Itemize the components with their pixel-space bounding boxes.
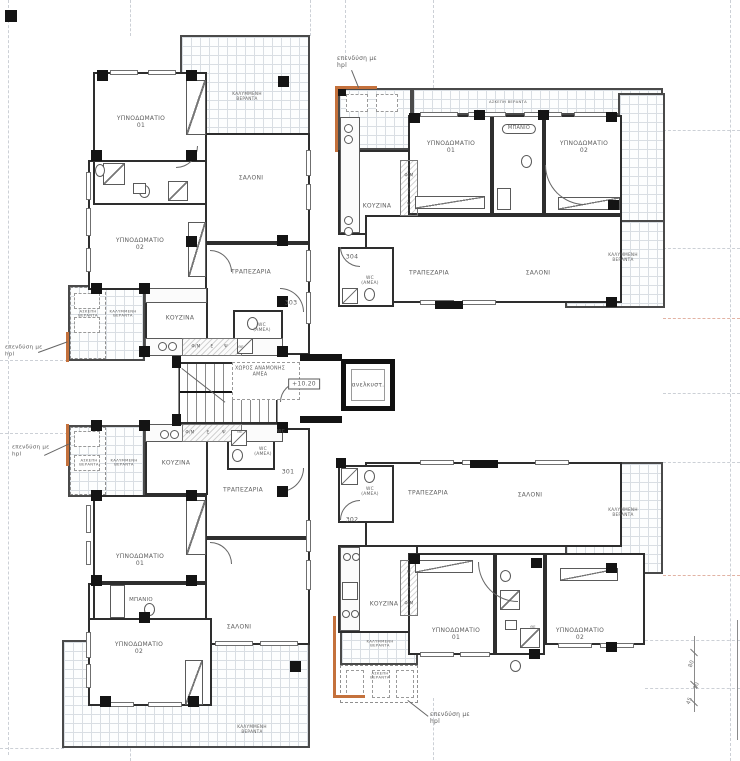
room-label-living-302: ΣΑΛΟΝΙ [518, 491, 542, 498]
fixture-shower-or-closet [520, 628, 540, 648]
grid-axis-line [645, 640, 740, 641]
room-label-veranda-open-302-small: ΑΣΚΕΠΗ ΒΕΡΑΝΤΑ [370, 672, 389, 681]
structural-column [91, 283, 102, 294]
fixture-sanitary [95, 164, 105, 177]
fixture-sanitary [342, 610, 350, 618]
room-label-dining-301: ΤΡΑΠΕΖΑΡΙΑ [223, 486, 263, 493]
window [306, 560, 311, 590]
fixture [505, 620, 517, 630]
shower-tag-302: ΘΕ [530, 625, 536, 629]
window [86, 632, 91, 658]
structural-column [409, 113, 420, 123]
appliance-fm-302: Φ/Μ [404, 601, 413, 606]
window [462, 300, 496, 305]
fixture-shower-or-closet [415, 560, 473, 573]
structural-column [278, 76, 289, 87]
fixture-sanitary [160, 430, 169, 439]
hpl-cladding-accent [335, 86, 377, 89]
structural-column [277, 235, 288, 246]
fixture-sanitary [521, 155, 532, 168]
structural-column [97, 70, 108, 81]
dashed-outline [74, 431, 100, 447]
grid-axis-line [663, 393, 740, 394]
structural-column [5, 10, 17, 22]
window [86, 541, 91, 565]
appliance-fm-304: Φ/Μ [404, 173, 413, 178]
structural-column [139, 346, 150, 357]
label-elevator: ανελκυστ. [352, 381, 385, 388]
wall-segment [435, 301, 463, 309]
room-label-living-304: ΣΑΛΟΝΙ [526, 269, 550, 276]
room-label-veranda-covered-303-side: ΚΑΛΥΜΜΕΝΗ ΒΕΡΑΝΤΑ [110, 310, 137, 319]
structural-column [474, 110, 485, 120]
room-label-living-303: ΣΑΛΟΝΙ [239, 174, 263, 181]
grid-axis-line [345, 0, 346, 58]
appliance-e-302: Ε [408, 586, 411, 591]
structural-column [409, 554, 420, 564]
room-label-bedroom1-304: ΥΠΝΟΔΩΜΑΤΙΟ 01 [427, 140, 475, 154]
grid-axis-line [663, 575, 740, 576]
note-hpl-top: επενδύση με hpl [337, 55, 377, 69]
appliance-psi-302: Ψ [407, 570, 411, 575]
room-label-veranda-covered-301-side: ΚΑΛΥΜΜΕΝΗ ΒΕΡΑΝΤΑ [111, 459, 138, 468]
level-marker: +10.20 [288, 379, 320, 390]
structural-column [538, 110, 549, 120]
structural-column [172, 414, 181, 426]
structural-column [277, 346, 288, 357]
room-label-bedroom2-303: ΥΠΝΟΔΩΜΑΤΙΟ 02 [116, 237, 164, 251]
window [260, 641, 298, 646]
room-label-bath-301: ΜΠΑΝΙΟ [129, 597, 153, 603]
fixture-sanitary [510, 660, 521, 672]
window [420, 112, 458, 117]
fixture-shower-or-closet [341, 468, 358, 485]
grid-axis-line [433, 698, 434, 760]
room-label-kitchen-301: ΚΟΥΖΙΝΑ [162, 459, 191, 466]
wall-segment [300, 354, 342, 361]
hpl-cladding-accent [335, 86, 338, 152]
room-label-veranda-covered-302-small: ΚΑΛΥΜΜΕΝΗ ΒΕΡΑΝΤΑ [367, 640, 394, 649]
window [86, 664, 91, 688]
wall-segment [470, 460, 498, 468]
dashed-outline [376, 94, 398, 112]
note-hpl-left-upper: επενδύση με hpl [5, 344, 42, 357]
fixture-sanitary [364, 288, 375, 301]
fixture [497, 188, 511, 210]
wall-segment [300, 416, 342, 423]
grid-axis-line [0, 360, 68, 361]
window [86, 208, 91, 236]
window [86, 248, 91, 272]
fixture-sanitary [168, 342, 177, 351]
structural-column [608, 200, 619, 210]
hpl-cladding-accent [333, 616, 336, 698]
room-label-dining-304: ΤΡΑΠΕΖΑΡΙΑ [409, 269, 449, 276]
room-label-dining-303: ΤΡΑΠΕΖΑΡΙΑ [231, 268, 271, 275]
fixture-shower-or-closet [103, 163, 125, 185]
fixture-sanitary [352, 553, 360, 561]
appliance-psi-304: Ψ [407, 202, 411, 207]
structural-column [139, 283, 150, 294]
window [535, 460, 569, 465]
room-label-wc-amea-303: WC (ΑΜΕΑ) [253, 323, 271, 333]
fixture-sanitary [343, 553, 351, 561]
grid-axis-line [663, 130, 740, 131]
appliance-e-304: Ε [408, 188, 411, 193]
dashed-outline [74, 293, 100, 309]
floor-plan-sheet: επενδύση με hplΚΑΛΥΜΜΕΝΗ ΒΕΡΑΝΤΑΥΠΝΟΔΩΜΑ… [0, 0, 740, 761]
appliance-psi-301: Ψ [222, 430, 226, 435]
room-label-veranda-covered-304: ΚΑΛΥΜΜΕΝΗ ΒΕΡΑΝΤΑ [608, 253, 637, 263]
room-label-veranda-covered-303-top: ΚΑΛΥΜΜΕΝΗ ΒΕΡΑΝΤΑ [232, 92, 261, 102]
unit-number-302: 302 [346, 516, 359, 523]
room-label-bedroom1-302: ΥΠΝΟΔΩΜΑΤΙΟ 01 [432, 627, 480, 641]
grid-axis-line [663, 248, 740, 249]
dim-45: 45 [686, 696, 695, 705]
fixture-sanitary [232, 449, 243, 462]
fixture-shower-or-closet [168, 181, 188, 201]
shower-tag-303: ΘΕ [238, 345, 244, 349]
dashed-outline [396, 670, 414, 698]
fixture-shower-or-closet [186, 500, 206, 555]
window [420, 652, 454, 657]
room-label-veranda-open-304: ΑΣΚΕΠΗ ΒΕΡΑΝΤΑ [489, 100, 527, 104]
fixture-sanitary [351, 610, 359, 618]
structural-column [606, 297, 617, 307]
fixture-shower-or-closet [188, 222, 206, 277]
annotation-leader-line [38, 341, 67, 353]
window [215, 641, 253, 646]
room-label-veranda-covered-302: ΚΑΛΥΜΜΕΝΗ ΒΕΡΑΝΤΑ [608, 508, 637, 518]
grid-axis-line [730, 0, 731, 761]
fixture-sanitary [364, 470, 375, 483]
structural-column [91, 575, 102, 586]
fixture-shower-or-closet [415, 196, 485, 209]
grid-axis-line [0, 748, 64, 749]
window [148, 70, 176, 75]
appliance-fm-301: Φ/Μ [185, 430, 194, 435]
structural-column [188, 696, 199, 707]
room-label-kitchen-304: ΚΟΥΖΙΝΑ [363, 202, 392, 209]
window [86, 172, 91, 200]
structural-column [172, 356, 181, 368]
fixture-sanitary [344, 135, 353, 144]
unit-number-304: 304 [346, 253, 359, 260]
appliance-e-303: Ε [211, 344, 214, 349]
structural-column [531, 558, 542, 568]
unit-number-303: 303 [285, 299, 298, 306]
wall [365, 215, 622, 303]
structural-column [606, 112, 617, 122]
room-label-bedroom1-303: ΥΠΝΟΔΩΜΑΤΙΟ 01 [117, 115, 165, 129]
appliance-e-301: Ε [207, 430, 210, 435]
structural-column [606, 642, 617, 652]
appliance-fm-303: Φ/Μ [191, 344, 200, 349]
window [420, 460, 454, 465]
label-waiting-area-amea: ΧΩΡΟΣ ΑΝΑΜΟΝΗΣ ΑΜΕΑ [235, 366, 285, 377]
fixture-sanitary [344, 124, 353, 133]
room-label-kitchen-302: ΚΟΥΖΙΝΑ [370, 600, 399, 607]
room-label-wc-amea-304: WC (ΑΜΕΑ) [361, 276, 379, 286]
room-label-wc-amea-302: WC (ΑΜΕΑ) [361, 487, 379, 497]
hpl-cladding-accent [333, 695, 365, 698]
structural-column [186, 236, 197, 247]
window [306, 250, 311, 282]
room-label-wc-amea-301: WC (ΑΜΕΑ) [254, 447, 272, 457]
window [306, 150, 311, 176]
structural-column [91, 490, 102, 501]
fixture [342, 582, 358, 600]
grid-axis-line [663, 318, 740, 319]
structural-column [336, 458, 346, 468]
room-label-veranda-covered-301-bottom: ΚΑΛΥΜΜΕΝΗ ΒΕΡΑΝΤΑ [237, 725, 266, 735]
wall [365, 462, 622, 547]
structural-column [139, 612, 150, 623]
window [306, 292, 311, 324]
note-hpl-left-lower: επενδύση με hpl [12, 444, 49, 457]
room-label-bath-304: ΜΠΑΝΙΟ [502, 124, 536, 134]
structural-column [100, 696, 111, 707]
dashed-outline [346, 94, 368, 112]
grid-axis-line [310, 0, 311, 36]
fixture-sanitary [344, 227, 353, 236]
structural-column [290, 661, 301, 672]
fixture-sanitary [170, 430, 179, 439]
grid-axis-line [663, 462, 740, 463]
note-hpl-bottom: επενδύση με hpl [430, 711, 470, 725]
hpl-cladding-accent [66, 332, 69, 362]
structural-column [186, 150, 197, 161]
grid-axis-line [8, 0, 9, 755]
structural-column [277, 486, 288, 497]
window [306, 184, 311, 210]
structural-column [91, 420, 102, 431]
grid-axis-line [130, 0, 131, 36]
fixture-sanitary [158, 342, 167, 351]
window [306, 520, 311, 552]
structural-column [91, 150, 102, 161]
grid-axis-line [433, 0, 434, 88]
kitchen-counter [145, 288, 207, 303]
dashed-outline [346, 670, 364, 698]
room-label-kitchen-303: ΚΟΥΖΙΝΑ [166, 314, 195, 321]
dim-70: 70 [693, 681, 702, 690]
window [86, 505, 91, 533]
dimension-line [694, 636, 695, 712]
window [558, 643, 592, 648]
room-label-bedroom2-301: ΥΠΝΟΔΩΜΑΤΙΟ 02 [115, 641, 163, 655]
unit-number-301: 301 [282, 468, 295, 475]
window [460, 652, 490, 657]
window [110, 70, 138, 75]
structural-column [606, 563, 617, 573]
room-label-veranda-open-301: ΑΣΚΕΠΗ ΒΕΡΑΝΤΑ [79, 459, 98, 468]
fixture [133, 183, 146, 194]
wall [205, 133, 310, 243]
fixture-sanitary [344, 216, 353, 225]
room-label-veranda-open-303: ΑΣΚΕΠΗ ΒΕΡΑΝΤΑ [78, 310, 97, 319]
shower-tag-301: ΘΕ [237, 430, 243, 434]
structural-column [186, 70, 197, 81]
structural-column [186, 490, 197, 501]
label-wc-301-small: WC [277, 429, 285, 434]
structural-column [529, 649, 540, 659]
room-label-living-301: ΣΑΛΟΝΙ [227, 623, 251, 630]
room-label-dining-302: ΤΡΑΠΕΖΑΡΙΑ [408, 489, 448, 496]
window [148, 702, 182, 707]
fixture [110, 585, 125, 618]
room-label-bedroom1-301: ΥΠΝΟΔΩΜΑΤΙΟ 01 [116, 553, 164, 567]
appliance-psi-303: Ψ [224, 344, 228, 349]
dimension-line [737, 620, 738, 740]
room-label-bedroom2-304: ΥΠΝΟΔΩΜΑΤΙΟ 02 [560, 140, 608, 154]
structural-column [186, 575, 197, 586]
structural-column [139, 420, 150, 431]
room-label-bedroom2-302: ΥΠΝΟΔΩΜΑΤΙΟ 02 [556, 627, 604, 641]
dashed-outline [74, 317, 100, 333]
fixture-shower-or-closet [342, 288, 358, 304]
fixture-shower-or-closet [186, 80, 206, 135]
grid-axis-line [0, 433, 68, 434]
